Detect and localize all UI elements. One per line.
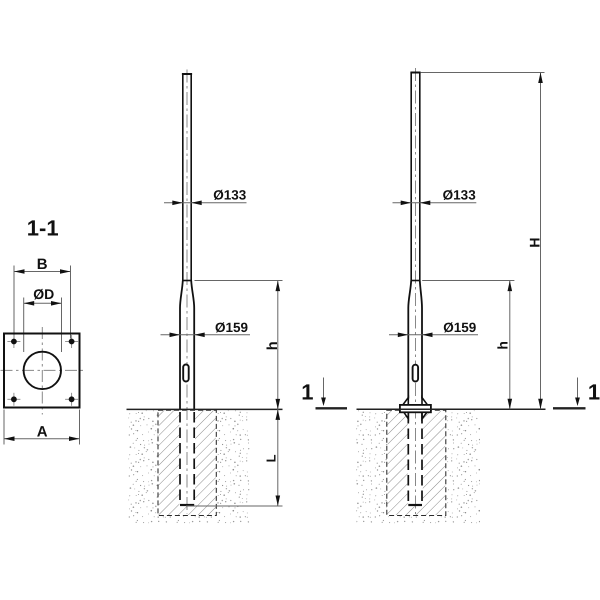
svg-text:h: h	[495, 341, 511, 350]
svg-text:B: B	[37, 256, 48, 273]
svg-text:1: 1	[301, 380, 313, 405]
svg-text:Ø159: Ø159	[443, 320, 476, 335]
svg-text:1: 1	[588, 380, 600, 405]
svg-text:h: h	[265, 341, 281, 350]
svg-text:Ø159: Ø159	[215, 320, 248, 335]
svg-text:L: L	[264, 454, 279, 462]
svg-text:Ø133: Ø133	[443, 188, 477, 203]
svg-text:Ø133: Ø133	[213, 188, 247, 203]
svg-text:A: A	[37, 424, 48, 441]
svg-text:H: H	[526, 238, 542, 248]
svg-text:ØD: ØD	[33, 286, 54, 302]
svg-text:1-1: 1-1	[27, 216, 59, 241]
